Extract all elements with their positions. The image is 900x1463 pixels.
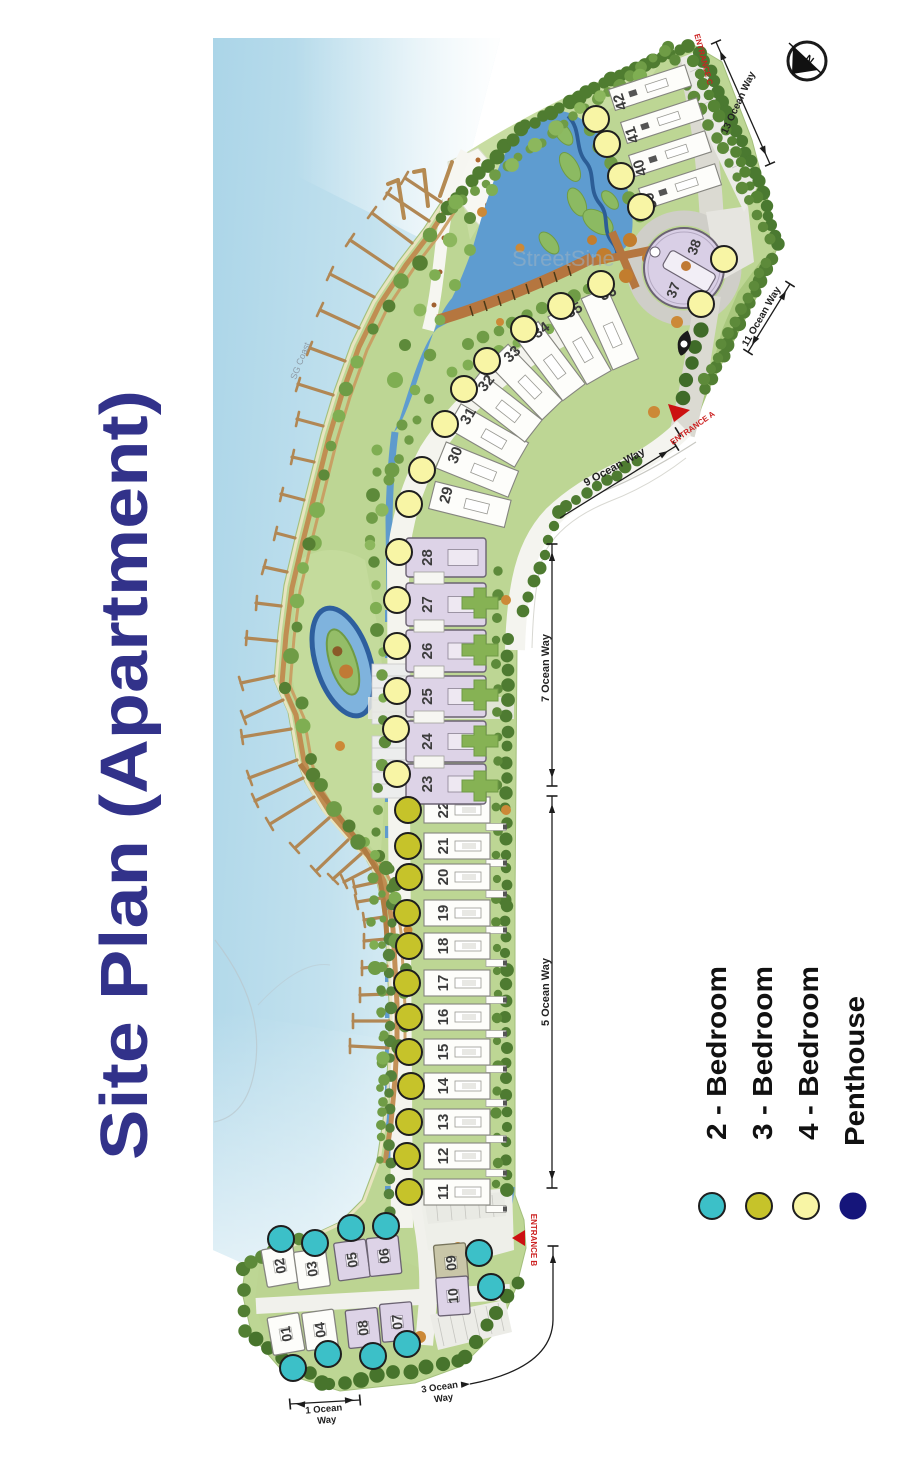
- svg-text:15: 15: [435, 1044, 452, 1061]
- svg-text:ENTRANCE B: ENTRANCE B: [529, 1214, 538, 1267]
- svg-text:01: 01: [277, 1325, 295, 1343]
- svg-text:03: 03: [303, 1260, 321, 1278]
- svg-text:23: 23: [419, 776, 436, 793]
- svg-text:12: 12: [435, 1148, 452, 1165]
- svg-text:18: 18: [435, 938, 452, 955]
- svg-text:28: 28: [419, 549, 436, 566]
- svg-text:3 - Bedroom: 3 - Bedroom: [747, 966, 778, 1140]
- svg-text:11: 11: [435, 1184, 452, 1200]
- svg-text:06: 06: [375, 1247, 393, 1264]
- svg-text:04: 04: [311, 1321, 329, 1339]
- svg-text:02: 02: [271, 1257, 289, 1275]
- svg-text:Way: Way: [317, 1414, 338, 1427]
- svg-text:Penthouse: Penthouse: [839, 996, 870, 1146]
- svg-text:10: 10: [444, 1287, 461, 1304]
- svg-text:StreetSine: StreetSine: [512, 246, 615, 271]
- svg-text:7 Ocean Way: 7 Ocean Way: [540, 633, 552, 702]
- svg-text:26: 26: [419, 643, 436, 660]
- svg-text:4 - Bedroom: 4 - Bedroom: [793, 966, 824, 1140]
- svg-text:20: 20: [435, 869, 452, 886]
- svg-text:24: 24: [419, 733, 436, 750]
- svg-text:27: 27: [419, 596, 436, 613]
- svg-text:5 Ocean Way: 5 Ocean Way: [540, 957, 552, 1026]
- svg-text:08: 08: [354, 1319, 372, 1336]
- svg-text:19: 19: [435, 905, 452, 922]
- svg-text:17: 17: [435, 975, 452, 992]
- svg-text:21: 21: [435, 838, 452, 855]
- svg-text:09: 09: [442, 1254, 459, 1271]
- svg-text:16: 16: [435, 1009, 452, 1026]
- svg-text:13: 13: [435, 1114, 452, 1131]
- svg-text:2 - Bedroom: 2 - Bedroom: [701, 966, 732, 1140]
- svg-text:Site Plan (Apartment): Site Plan (Apartment): [87, 390, 162, 1160]
- svg-text:07: 07: [388, 1313, 405, 1330]
- svg-text:25: 25: [419, 688, 436, 705]
- svg-text:14: 14: [435, 1077, 452, 1094]
- svg-text:05: 05: [343, 1251, 361, 1269]
